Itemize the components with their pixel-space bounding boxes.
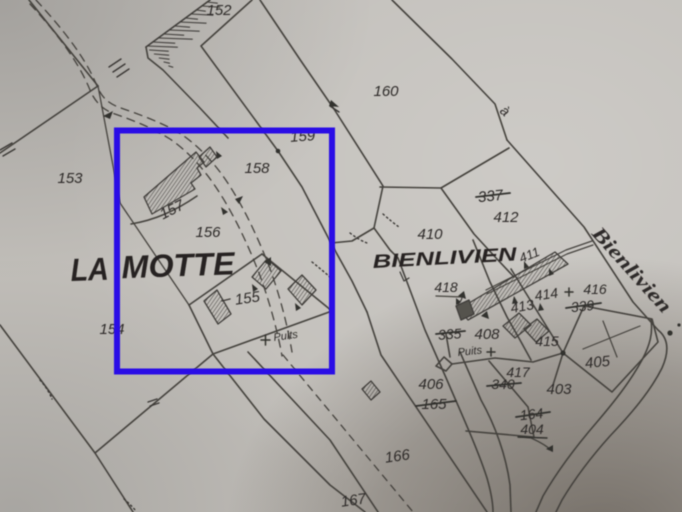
svg-text:404: 404	[520, 421, 544, 437]
svg-text:155: 155	[234, 288, 262, 308]
svg-text:408: 408	[474, 326, 500, 343]
svg-text:418: 418	[434, 279, 458, 295]
svg-text:MOTTE: MOTTE	[121, 245, 237, 285]
svg-text:416: 416	[583, 281, 607, 297]
svg-text:152: 152	[206, 2, 232, 19]
svg-text:403: 403	[546, 381, 572, 398]
svg-text:167: 167	[340, 490, 368, 510]
svg-text:153: 153	[57, 170, 83, 187]
svg-text:166: 166	[384, 446, 412, 466]
svg-text:415: 415	[535, 333, 559, 349]
svg-text:LA: LA	[70, 251, 109, 288]
svg-text:160: 160	[373, 83, 399, 100]
svg-text:156: 156	[195, 224, 221, 241]
svg-text:414: 414	[534, 284, 560, 303]
svg-text:410: 410	[417, 226, 443, 243]
svg-text:158: 158	[244, 160, 270, 177]
svg-text:405: 405	[584, 353, 611, 373]
svg-text:406: 406	[418, 376, 444, 393]
svg-text:412: 412	[493, 209, 519, 226]
svg-text:154: 154	[99, 321, 124, 338]
